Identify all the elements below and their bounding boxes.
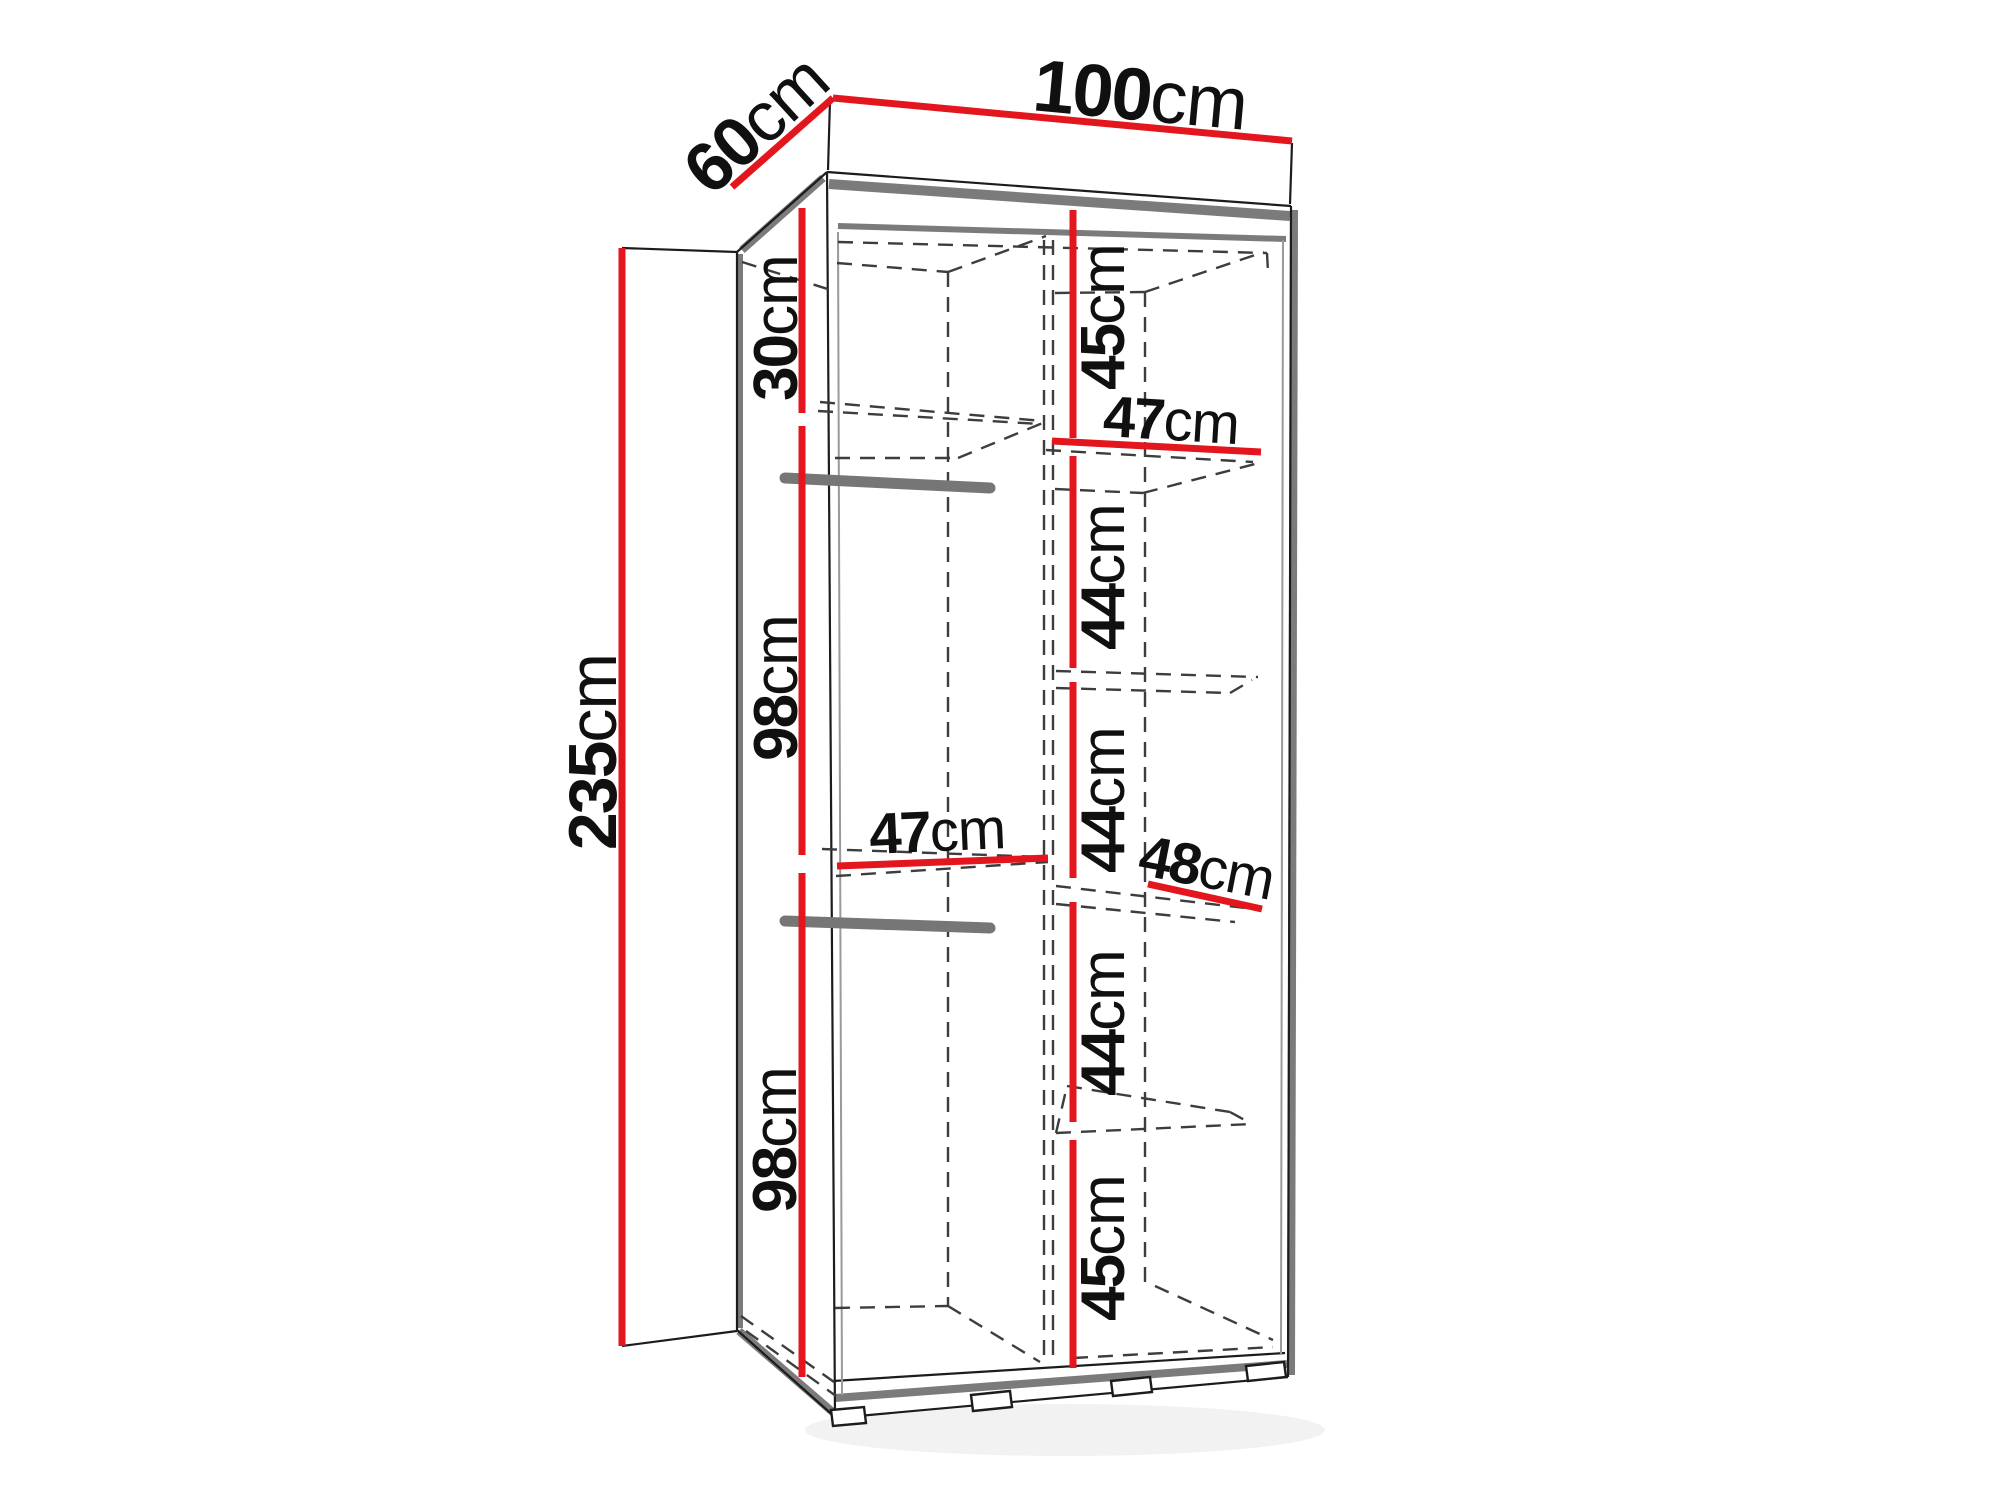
dim-overall-height-label: 235cm [555,654,631,850]
cabinet-faces [737,172,1291,1418]
foot-3 [1111,1377,1152,1396]
diagram-canvas: 100cm 60cm 235cm 30cm 98cm 98cm 47cm 45c… [0,0,1998,1499]
foot-2 [971,1391,1012,1411]
dim-right-44c-label: 44cm [1069,950,1138,1096]
dim-right-45b-label: 45cm [1069,1175,1138,1321]
foot-1 [831,1407,866,1426]
dim-left-98a-label: 98cm [742,615,811,761]
dim-right-44b-label: 44cm [1069,727,1138,873]
dim-right-shelf47-label: 47cm [1101,384,1241,457]
dim-overall-width-label: 100cm [1030,43,1251,145]
dim-left-shelf47-label: 47cm [868,796,1007,867]
dim-left-top30-label: 30cm [742,255,811,401]
dim-right-45a-label: 45cm [1069,244,1138,390]
dim-right-44a-label: 44cm [1069,504,1138,650]
dim-left-98b-label: 98cm [741,1067,810,1213]
foot-4 [1246,1362,1286,1381]
hanging-rail-lower [785,921,990,928]
wardrobe-dimension-diagram: 100cm 60cm 235cm 30cm 98cm 98cm 47cm 45c… [0,0,1998,1499]
